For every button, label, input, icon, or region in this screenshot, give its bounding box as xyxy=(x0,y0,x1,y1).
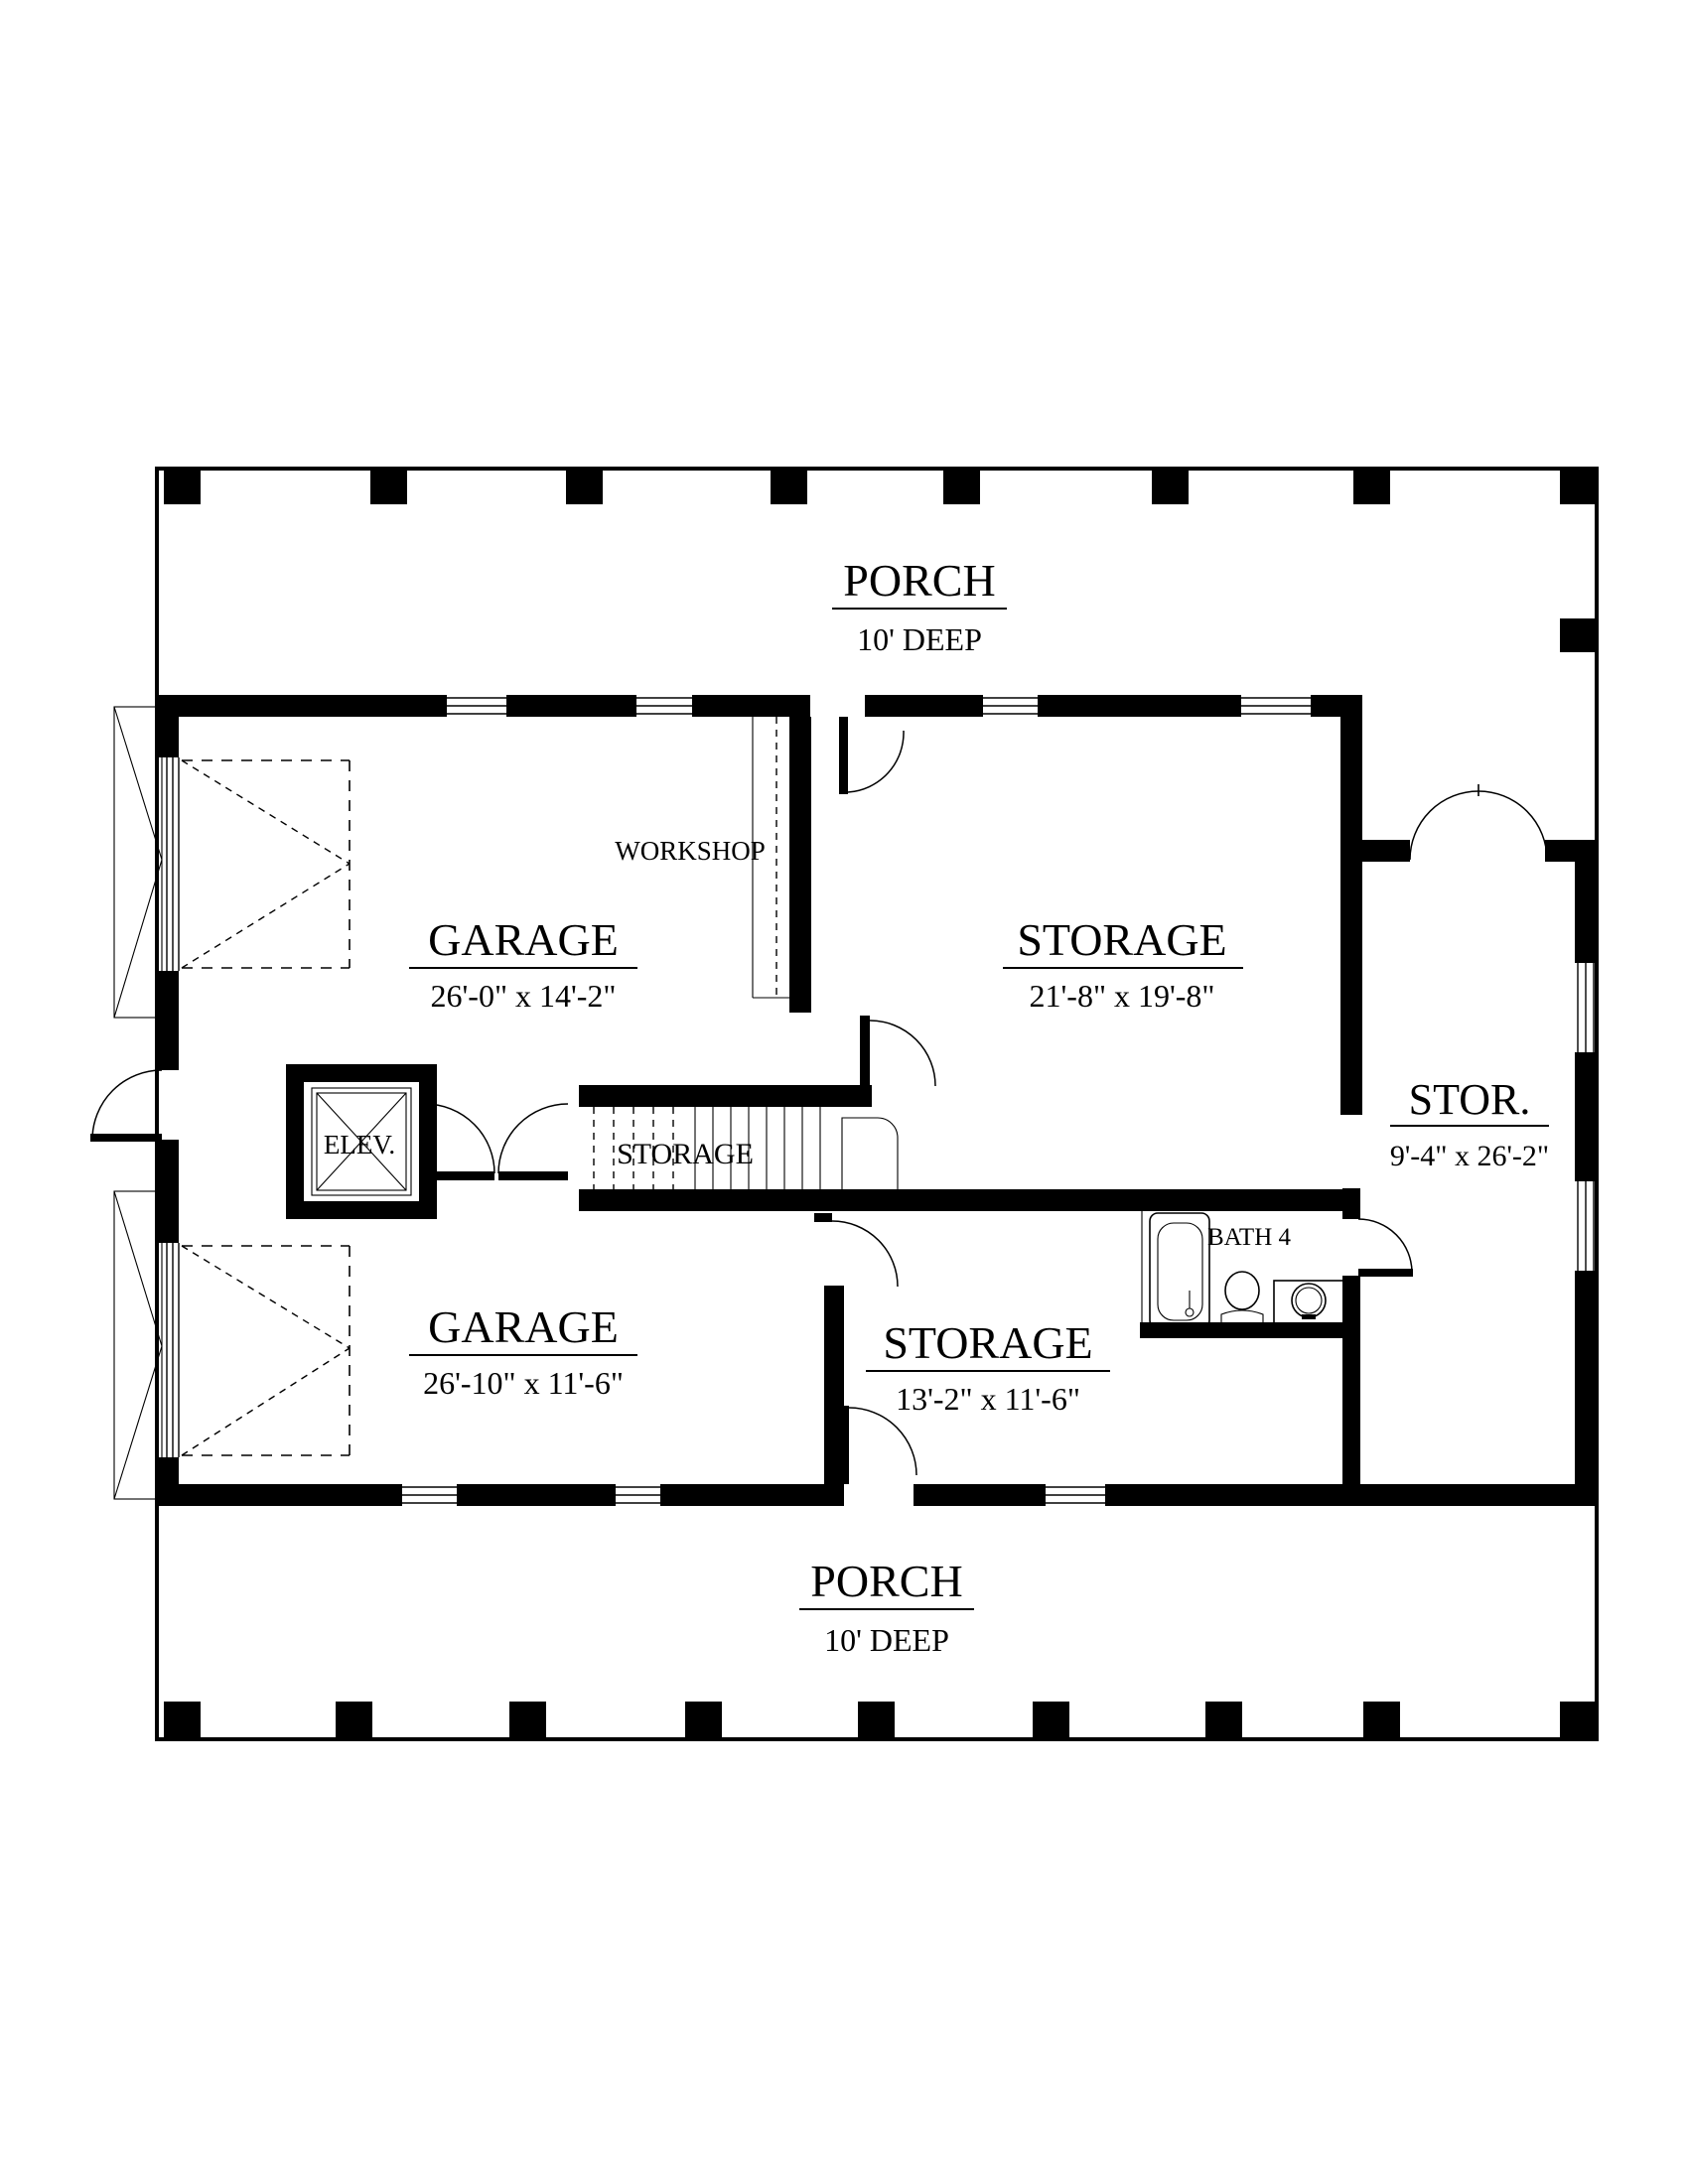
stair-storage-label: STORAGE xyxy=(617,1138,754,1170)
entry-double-door xyxy=(1410,784,1547,860)
storage-main-dims: 21'-8" x 19'-8" xyxy=(1030,978,1215,1014)
garage-bottom-name: GARAGE xyxy=(428,1301,619,1352)
storage-bottom-name: STORAGE xyxy=(883,1317,1092,1368)
exterior-wall-west xyxy=(157,695,179,1506)
room-label-porch-top: PORCH 10' DEEP xyxy=(832,555,1007,657)
porch-bottom-dims: 10' DEEP xyxy=(824,1622,949,1658)
tub-drain xyxy=(1186,1308,1194,1316)
room-label-porch-bottom: PORCH 10' DEEP xyxy=(799,1556,974,1658)
floor-plan-drawing: PORCH 10' DEEP GARAGE 26'-0" x 14'-2" WO… xyxy=(0,0,1688,2184)
stor-west-wall xyxy=(1340,717,1362,1506)
bath-label: BATH 4 xyxy=(1207,1224,1292,1251)
room-label-stor-right: STOR. 9'-4" x 26'-2" xyxy=(1390,1075,1549,1172)
exterior-wall-north xyxy=(157,695,1362,717)
toilet xyxy=(1225,1272,1259,1309)
room-label-garage-top: GARAGE 26'-0" x 14'-2" xyxy=(409,914,637,1014)
stor-right-name: STOR. xyxy=(1409,1075,1531,1124)
garage-bottom-dims: 26'-10" x 11'-6" xyxy=(423,1365,624,1401)
porch-top-dims: 10' DEEP xyxy=(857,621,982,657)
porch-pillar-right xyxy=(1560,618,1597,652)
floor-plan-page: PORCH 10' DEEP GARAGE 26'-0" x 14'-2" WO… xyxy=(0,0,1688,2184)
porch-bottom-name: PORCH xyxy=(810,1556,962,1606)
storage-main-name: STORAGE xyxy=(1017,914,1226,965)
stair-railing xyxy=(842,1118,898,1189)
bath-door xyxy=(1358,1219,1413,1277)
stor-right-dims: 9'-4" x 26'-2" xyxy=(1390,1140,1549,1172)
elevator-label: ELEV. xyxy=(324,1130,395,1160)
porch-top-name: PORCH xyxy=(843,555,995,606)
exterior-wall-south xyxy=(157,1484,1597,1506)
storage-bottom-dims: 13'-2" x 11'-6" xyxy=(896,1381,1080,1417)
storage-bottom-north-wall xyxy=(961,1189,1343,1211)
room-label-storage-bottom: STORAGE 13'-2" x 11'-6" xyxy=(866,1317,1110,1417)
entry-recess-walls xyxy=(1340,695,1597,864)
garage-top-name: GARAGE xyxy=(428,914,619,965)
workshop-label: WORKSHOP xyxy=(615,836,766,866)
garage-top-dims: 26'-0" x 14'-2" xyxy=(431,978,617,1014)
room-label-garage-bottom: GARAGE 26'-10" x 11'-6" xyxy=(409,1301,637,1401)
stair-top-door xyxy=(860,1016,935,1087)
garage-door-upper xyxy=(114,707,350,1018)
south-storage-door xyxy=(840,1406,916,1484)
porch-pillars-bottom xyxy=(164,1702,1597,1739)
sink xyxy=(1292,1284,1326,1317)
workshop-door xyxy=(839,717,904,794)
vestibule-doors xyxy=(425,1104,568,1180)
room-label-storage-main: STORAGE 21'-8" x 19'-8" xyxy=(1003,914,1243,1014)
garage-door-lower xyxy=(114,1191,350,1499)
porch-pillars-top xyxy=(164,467,1597,504)
west-exterior-door xyxy=(90,1070,162,1142)
